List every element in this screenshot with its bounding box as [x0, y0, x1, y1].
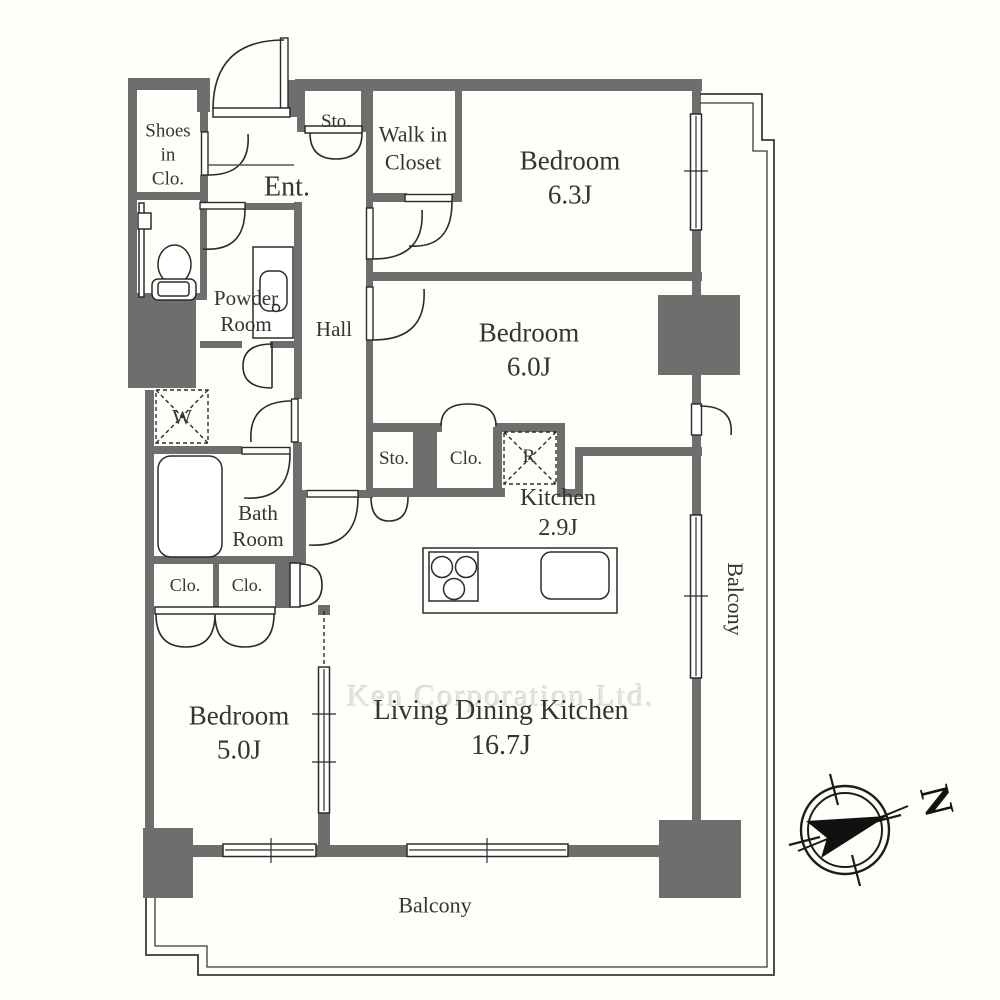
- label-washer: W: [172, 404, 192, 430]
- ldk-cabinet-slot: [290, 563, 300, 607]
- washroom-door-arc: [251, 401, 292, 442]
- hall-storage-bifold: [371, 497, 408, 521]
- label-storage-hall: Sto.: [379, 447, 409, 471]
- kitchen-sink: [541, 552, 609, 599]
- label-bedroom-63: Bedroom 6.3J: [520, 144, 621, 212]
- label-balcony-south: Balcony: [398, 891, 471, 919]
- kitchen-counter: [423, 548, 617, 613]
- entrance-door-arc: [213, 40, 284, 110]
- shaft-left: [128, 300, 196, 388]
- window-bedroom50-south: [223, 838, 316, 863]
- bedroom50-closet-bifold: [156, 614, 274, 647]
- label-bedroom-60: Bedroom 6.0J: [479, 316, 580, 384]
- closet60-bifold: [441, 404, 496, 426]
- label-entrance: Ent.: [264, 170, 310, 205]
- ldk-cabinet-bifold: [300, 564, 322, 606]
- bath-door-arc: [244, 454, 290, 498]
- balcony-door-leaf: [692, 404, 702, 435]
- floor-plan: Ken Corporation Ltd. Shoes in Clo. Ent. …: [0, 0, 1000, 1000]
- window-ldk-south: [407, 838, 568, 863]
- entrance-door-leaf: [281, 38, 289, 111]
- balcony-door-arc: [700, 406, 731, 435]
- label-walk-in-closet: Walk in Closet: [379, 121, 448, 176]
- label-shoes-closet: Shoes in Clo.: [145, 119, 190, 190]
- washroom-door-leaf: [292, 399, 299, 442]
- label-storage-entrance: Sto.: [321, 110, 351, 134]
- entrance-threshold: [213, 108, 290, 117]
- toilet-fixture: [138, 203, 196, 300]
- vestibule-door-leaf: [367, 208, 374, 259]
- bedroom60-door-leaf: [367, 287, 374, 340]
- wic-door-leaf: [405, 195, 452, 202]
- label-refrigerator: R: [523, 445, 536, 469]
- wic-door-arc: [409, 202, 452, 246]
- ldk-door-leaf: [307, 491, 358, 498]
- window-ldk-east: [684, 515, 708, 678]
- shoes-closet-door-arc: [208, 134, 248, 175]
- bedroom60-door-arc: [373, 289, 424, 340]
- label-bedroom-50: Bedroom 5.0J: [189, 699, 290, 767]
- ldk-door-arc: [309, 497, 358, 545]
- label-closet-hall: Clo.: [450, 447, 482, 471]
- compass: [789, 774, 908, 886]
- sliding-partition-bedroom50: [312, 611, 336, 813]
- label-ldk: Living Dining Kitchen 16.7J: [373, 693, 628, 763]
- fixtures: [138, 165, 617, 613]
- shoes-closet-door-leaf: [202, 132, 209, 175]
- label-bathroom: Bath Room: [232, 500, 283, 553]
- label-powder-room: Powder Room: [214, 285, 278, 338]
- powder-washroom-bifold: [243, 342, 272, 388]
- bedroom50-closet-face: [155, 607, 275, 614]
- powder-door-leaf: [200, 203, 245, 210]
- stove-burners: [429, 552, 478, 601]
- powder-door-arc: [203, 209, 245, 249]
- pillar-east-mid: [658, 295, 740, 375]
- window-bedroom63-east: [684, 114, 708, 230]
- pillar-south-west: [143, 828, 193, 898]
- bath-door-leaf: [242, 448, 290, 455]
- bathtub-fixture: [158, 456, 222, 557]
- label-kitchen: Kitchen 2.9J: [520, 483, 596, 543]
- pillar-south-east: [659, 820, 741, 898]
- vestibule-door-arc: [373, 210, 422, 259]
- label-balcony-east: Balcony: [721, 562, 749, 635]
- entry-storage-bifold: [310, 133, 362, 159]
- label-hall: Hall: [316, 316, 352, 342]
- label-closet-right: Clo.: [232, 574, 263, 597]
- label-closet-left: Clo.: [170, 574, 201, 597]
